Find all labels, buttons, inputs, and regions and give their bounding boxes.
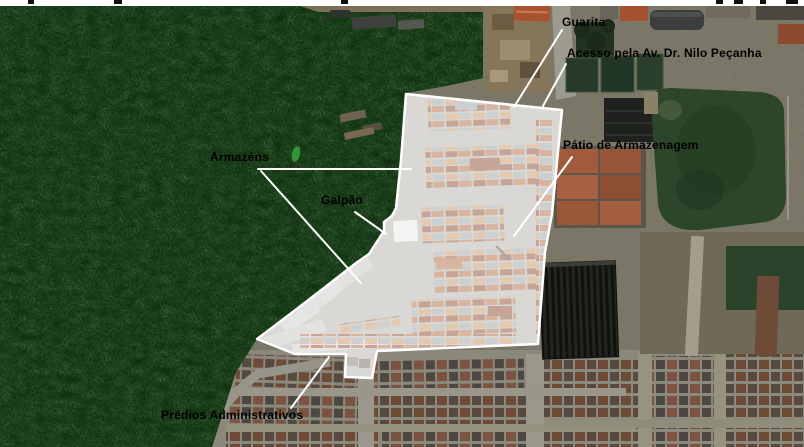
label-predios: Prédios Administrativos (161, 409, 303, 422)
label-acesso: Acesso pela Av. Dr. Nilo Peçanha (567, 47, 762, 60)
residential-blocks (185, 348, 804, 447)
label-armazens: Armazéns (210, 151, 269, 164)
label-guarita: Guarita (562, 16, 605, 29)
label-patio: Pátio de Armazenagem (563, 139, 699, 152)
annotated-satellite-map: Guarita Acesso pela Av. Dr. Nilo Peçanha… (0, 0, 804, 447)
satellite-image (0, 0, 804, 447)
cropped-text-artifacts (0, 0, 804, 6)
label-galpao: Galpão (321, 194, 363, 207)
